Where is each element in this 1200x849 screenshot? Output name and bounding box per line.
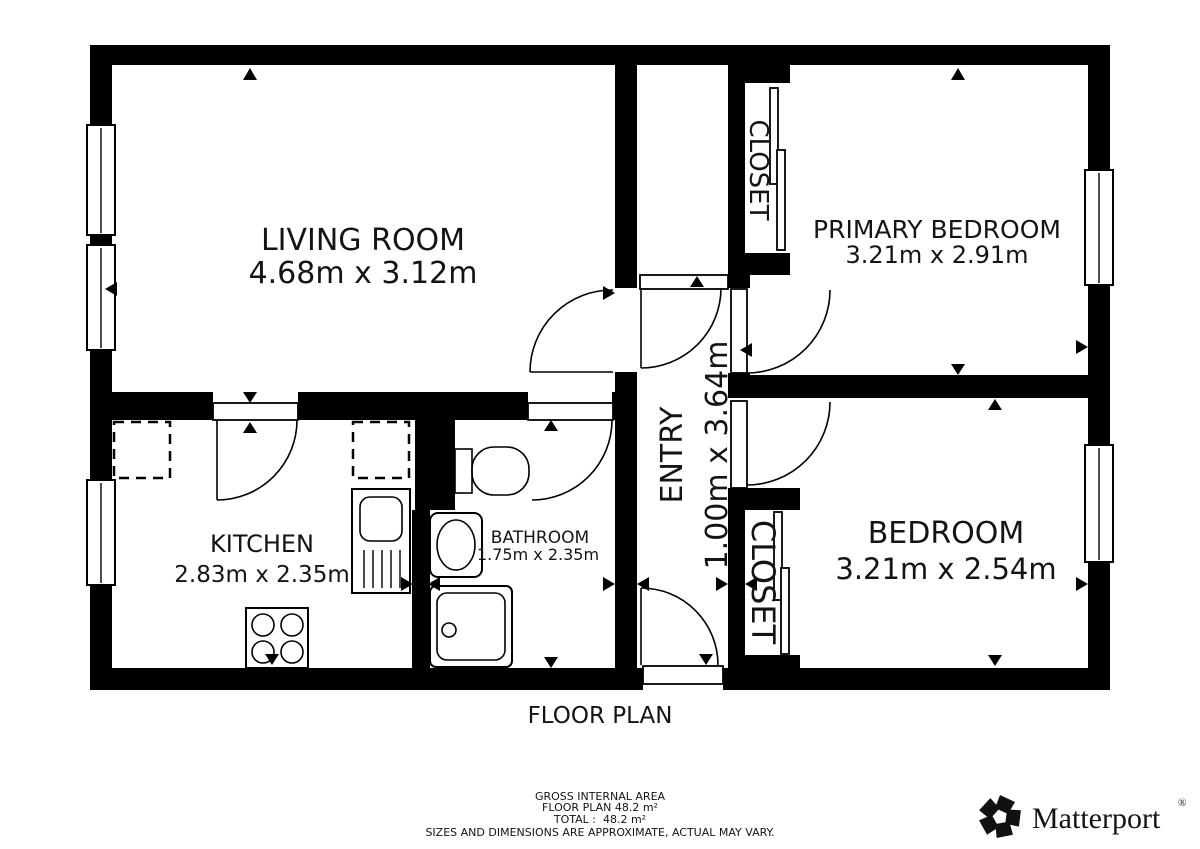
arrow-down-icon [544,657,558,668]
plan-footer: FLOOR PLAN GROSS INTERNAL AREA FLOOR PLA… [425,703,774,839]
matterport-logo: Matterport ® [975,795,1186,844]
window [87,480,115,585]
arrow-right-icon [716,577,728,591]
matterport-pinwheel-icon [975,795,1026,844]
primary-bedroom-label: PRIMARY BEDROOM [813,215,1061,244]
door-bathroom [528,403,613,500]
total-area-value: TOTAL : 48.2 m² [553,813,646,826]
door-kitchen [213,403,298,500]
closet-primary-label: CLOSET [743,120,773,221]
window [1085,170,1113,285]
window [1085,445,1113,562]
arrow-up-icon [988,399,1002,410]
shower-icon [430,586,512,667]
appliance-space-icon [353,422,409,478]
arrow-right-icon [603,286,615,300]
disclaimer-text: SIZES AND DIMENSIONS ARE APPROXIMATE, AC… [425,826,774,839]
arrow-down-icon [699,654,713,665]
living-room-dims: 4.68m x 3.12m [249,256,478,291]
door-living-room [530,290,613,372]
toilet-icon [455,447,529,495]
registered-mark: ® [1178,797,1186,809]
arrow-down-icon [243,392,257,403]
door-main-entry [641,588,723,684]
living-room-label: LIVING ROOM [261,223,465,258]
arrow-left-icon [637,577,649,591]
entry-dims: 1.00m x 3.64m [700,341,735,570]
arrow-up-icon [544,420,558,431]
bedroom-label: BEDROOM [868,516,1025,551]
fixtures [114,422,529,668]
window [87,245,115,350]
closet-bedroom-label: CLOSET [744,520,782,645]
matterport-wordmark: Matterport [1032,802,1161,835]
arrow-up-icon [243,422,257,433]
entry-label: ENTRY [655,406,690,504]
bathroom-sink-icon [430,513,482,577]
kitchen-label: KITCHEN [210,530,314,558]
arrow-right-icon [1076,577,1088,591]
arrow-up-icon [243,68,257,80]
bedroom-dims: 3.21m x 2.54m [835,552,1056,586]
window [87,125,115,235]
floor-plan-canvas: LIVING ROOM 4.68m x 3.12m PRIMARY BEDROO… [0,0,1200,849]
arrow-right-icon [1076,340,1088,354]
appliance-space-icon [114,422,170,478]
stove-icon [246,608,308,668]
door-bedroom [731,401,830,488]
arrow-down-icon [951,364,965,375]
primary-bedroom-dims: 3.21m x 2.91m [845,241,1028,269]
door-primary-bedroom [731,289,830,373]
arrow-up-icon [951,68,965,80]
arrow-right-icon [603,577,615,591]
floor-plan-page: LIVING ROOM 4.68m x 3.12m PRIMARY BEDROO… [0,0,1200,849]
arrow-down-icon [988,655,1002,666]
bathroom-dims: 1.75m x 2.35m [477,545,599,564]
plan-title: FLOOR PLAN [528,703,673,729]
kitchen-dims: 2.83m x 2.35m [174,562,349,588]
